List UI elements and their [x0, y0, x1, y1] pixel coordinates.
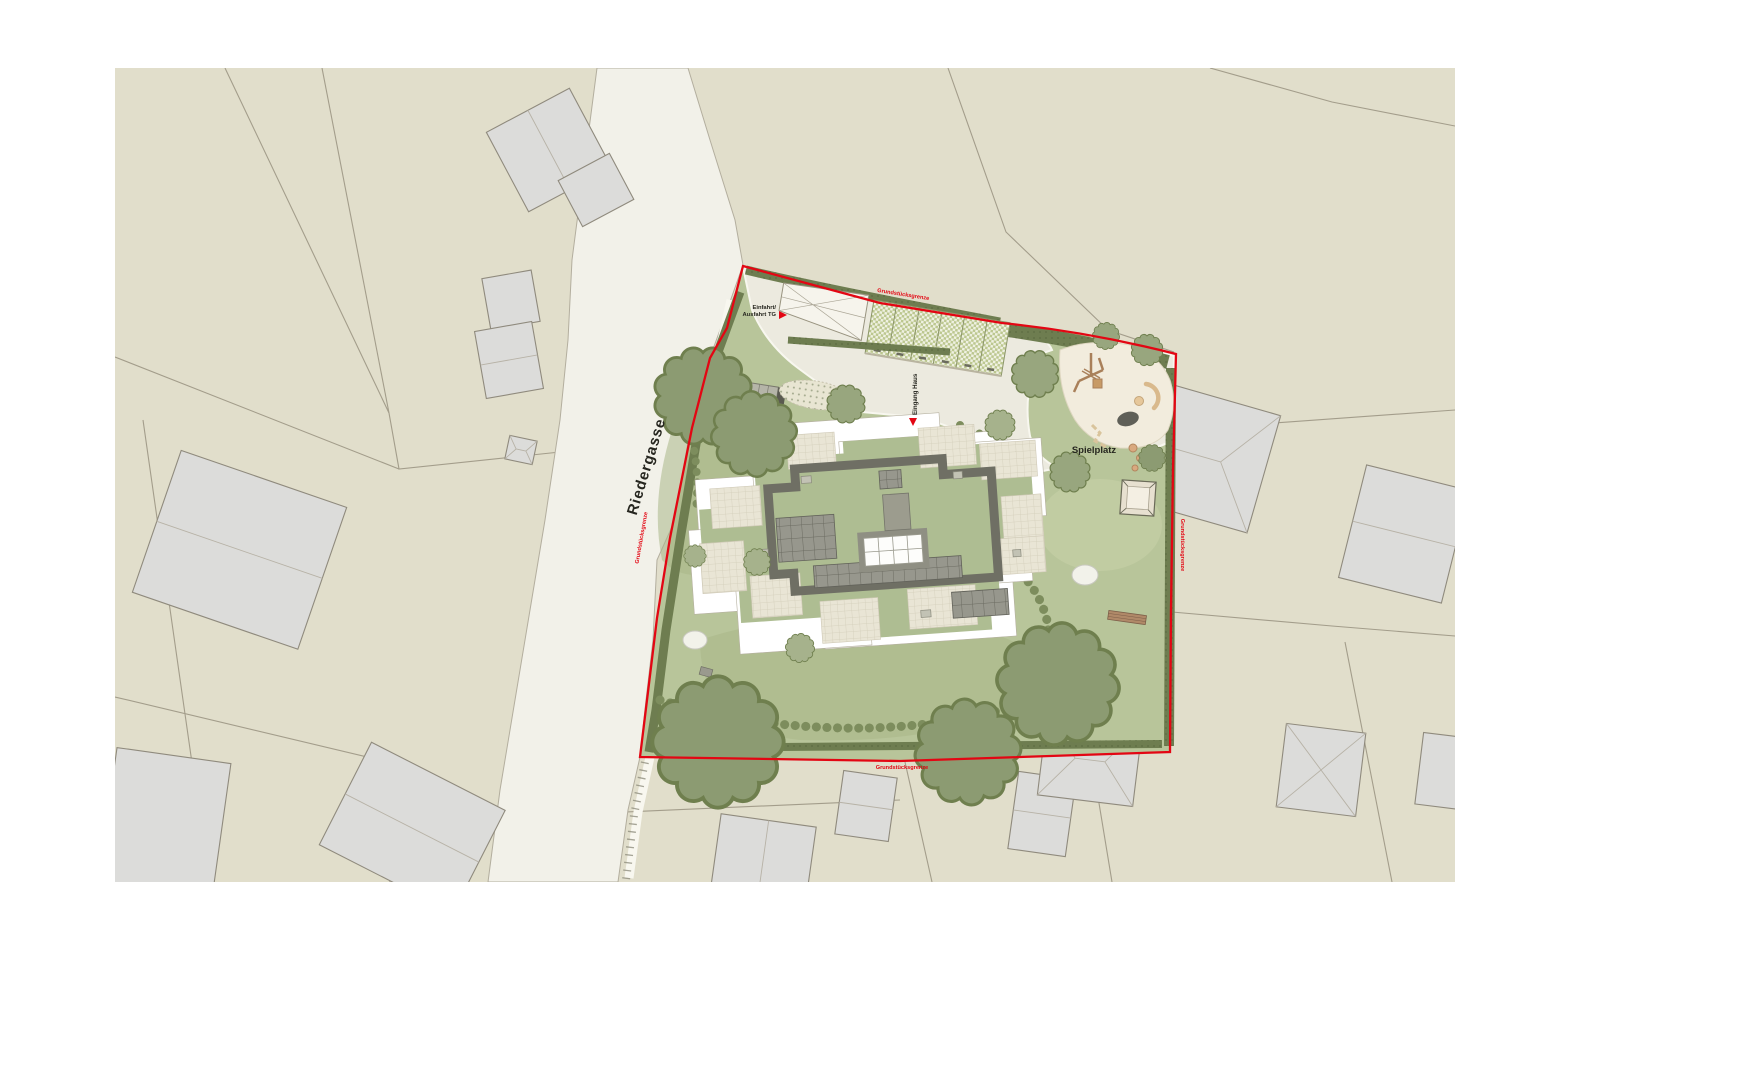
garage-entry-label-line1: Einfahrt/: [752, 305, 776, 311]
stair-core: [883, 493, 911, 531]
house-entrance-label: Eingang Haus: [912, 373, 919, 415]
boundary-label-east: Grundstücksgrenze: [1179, 519, 1185, 572]
boundary-label-south: Grundstücksgrenze: [876, 765, 929, 771]
project-site: Grundstücksgrenze Grundstücksgrenze Grun…: [634, 266, 1185, 820]
garage-entry-label-line2: Ausfahrt TG: [743, 312, 777, 318]
stone-circle-west: [683, 631, 707, 649]
site-plan-drawing: Grundstücksgrenze Grundstücksgrenze Grun…: [0, 0, 1759, 1080]
small-hip-roof-house: [505, 435, 537, 464]
garden-pavilion: [1120, 480, 1156, 516]
play-table: [1135, 397, 1144, 406]
site-plan-page: Grundstücksgrenze Grundstücksgrenze Grun…: [0, 0, 1759, 1080]
skylight: [857, 528, 930, 573]
stone-circle-east: [1072, 565, 1098, 585]
playground-label: Spielplatz: [1072, 445, 1117, 456]
